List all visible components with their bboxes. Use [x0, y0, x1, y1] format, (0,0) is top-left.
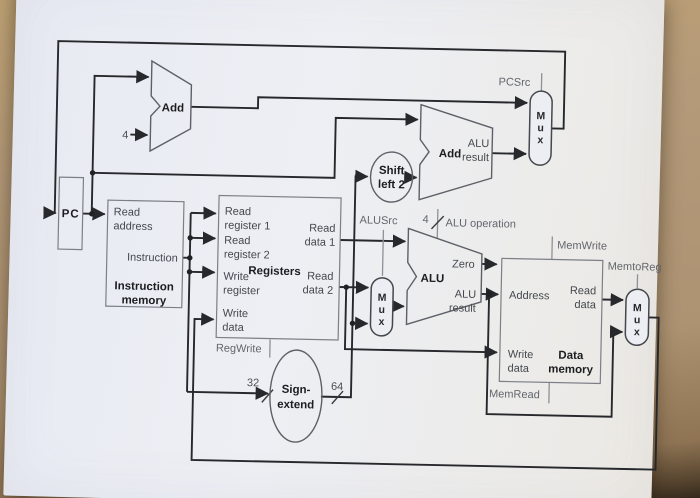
imem-instruction-label: Instruction [127, 252, 178, 265]
regwrite-signal-label: RegWrite [216, 342, 262, 355]
junction-dot [187, 255, 193, 261]
junction-dot [350, 321, 356, 327]
junction-dot [89, 211, 95, 217]
alusrc-control-line [382, 230, 383, 276]
alu-operation-signal-label: ALU operation [445, 217, 516, 230]
pc-label: PC [62, 208, 80, 220]
wire-instr-to-sign-extend [187, 392, 268, 394]
data-memory-title: Data [558, 350, 584, 363]
mux-letter: u [634, 314, 641, 326]
write-register-label: Write [223, 271, 249, 284]
branch-adder-label: Add [439, 148, 462, 160]
branch-adder-result-label: result [462, 152, 489, 165]
alu-zero-label: Zero [452, 258, 475, 270]
shift-left-2-label: left 2 [378, 179, 405, 192]
imem-title: memory [121, 294, 167, 307]
dm-read-data-label: Read [570, 285, 597, 298]
junction-dot [187, 235, 193, 241]
pcsrc-signal-label: PCSrc [498, 76, 531, 89]
bus-width-slash-32 [262, 389, 273, 402]
mux-letter: M [633, 302, 642, 314]
mux-letter: M [536, 110, 545, 122]
alusrc-signal-label: ALUSrc [359, 214, 398, 227]
mux-letter: x [634, 326, 640, 338]
dm-write-data-label: data [507, 363, 530, 375]
bus-width-64-label: 64 [331, 381, 343, 393]
read-register-2-label: Read [224, 235, 251, 248]
mux-letter: u [378, 304, 385, 316]
wire-instr-to-write-register [190, 272, 215, 273]
registers-title: Registers [248, 265, 301, 278]
wire-instr-to-read-register-2 [190, 238, 215, 239]
imem-read-address-label: Read [114, 206, 141, 219]
wire-pc-to-branch-add [93, 113, 418, 180]
read-register-1-label: Read [225, 206, 252, 219]
wire-pc-to-add [92, 76, 149, 215]
sign-extend-label: Sign- [282, 384, 311, 397]
alu-result-label: ALU [455, 288, 477, 300]
wire-pcsrc-mux-to-pc [55, 41, 565, 224]
mux-letter: x [537, 134, 543, 146]
read-data-2-label: Read [307, 270, 334, 283]
pc-adder-label: Add [162, 102, 185, 114]
dm-read-data-label: data [574, 299, 597, 311]
memtoreg-mux: M u x [625, 289, 649, 345]
write-register-label: register [223, 285, 260, 298]
read-register-1-label: register 1 [224, 220, 270, 233]
mux-letter: x [378, 316, 384, 328]
bus-width-32-label: 32 [247, 377, 259, 389]
memtoreg-signal-label: MemtoReg [608, 261, 662, 274]
alu-result-label: result [449, 302, 476, 315]
shift-left-2-label: Shift [379, 165, 405, 178]
junction-dot [90, 170, 96, 176]
wire-memtoreg-mux-to-write-data [192, 308, 659, 470]
reg-write-data-label: Write [223, 308, 249, 321]
data-memory-title: memory [548, 363, 594, 376]
increment-four-label: 4 [122, 129, 128, 141]
photo-of-paper: PC Read address Instruction Instruction … [0, 0, 700, 498]
alu-operation-width-label: 4 [422, 214, 428, 226]
read-data-1-label: Read [309, 222, 336, 235]
wire-branch-add-to-pcsrc-mux1 [492, 153, 526, 154]
pcsrc-mux: M u x [529, 91, 553, 165]
dm-address-label: Address [509, 290, 550, 303]
mux-letter: M [378, 292, 387, 304]
sign-extend-label: extend [277, 399, 314, 412]
wire-add-to-pcsrc-mux0 [191, 96, 527, 114]
dm-write-data-label: Write [508, 349, 534, 362]
alu-label: ALU [420, 273, 444, 285]
wire-read-data-1-to-alu [340, 240, 405, 241]
read-data-2-label: data 2 [302, 284, 333, 297]
junction-dot [187, 269, 193, 275]
junction-dot [486, 291, 492, 297]
memread-signal-label: MemRead [489, 388, 540, 401]
wire-instr-to-read-register-1 [191, 213, 216, 214]
read-register-2-label: register 2 [224, 249, 270, 262]
junction-dot [343, 284, 349, 290]
datapath-diagram: PC Read address Instruction Instruction … [0, 0, 700, 498]
alusrc-mux: M u x [370, 278, 393, 336]
branch-adder-result-label: ALU [468, 138, 490, 150]
read-data-1-label: data 1 [304, 236, 335, 249]
imem-read-address-label: address [113, 220, 153, 233]
memwrite-signal-label: MemWrite [557, 240, 607, 253]
imem-title: Instruction [114, 280, 174, 293]
mux-letter: u [537, 122, 544, 134]
reg-write-data-label: data [222, 322, 245, 334]
